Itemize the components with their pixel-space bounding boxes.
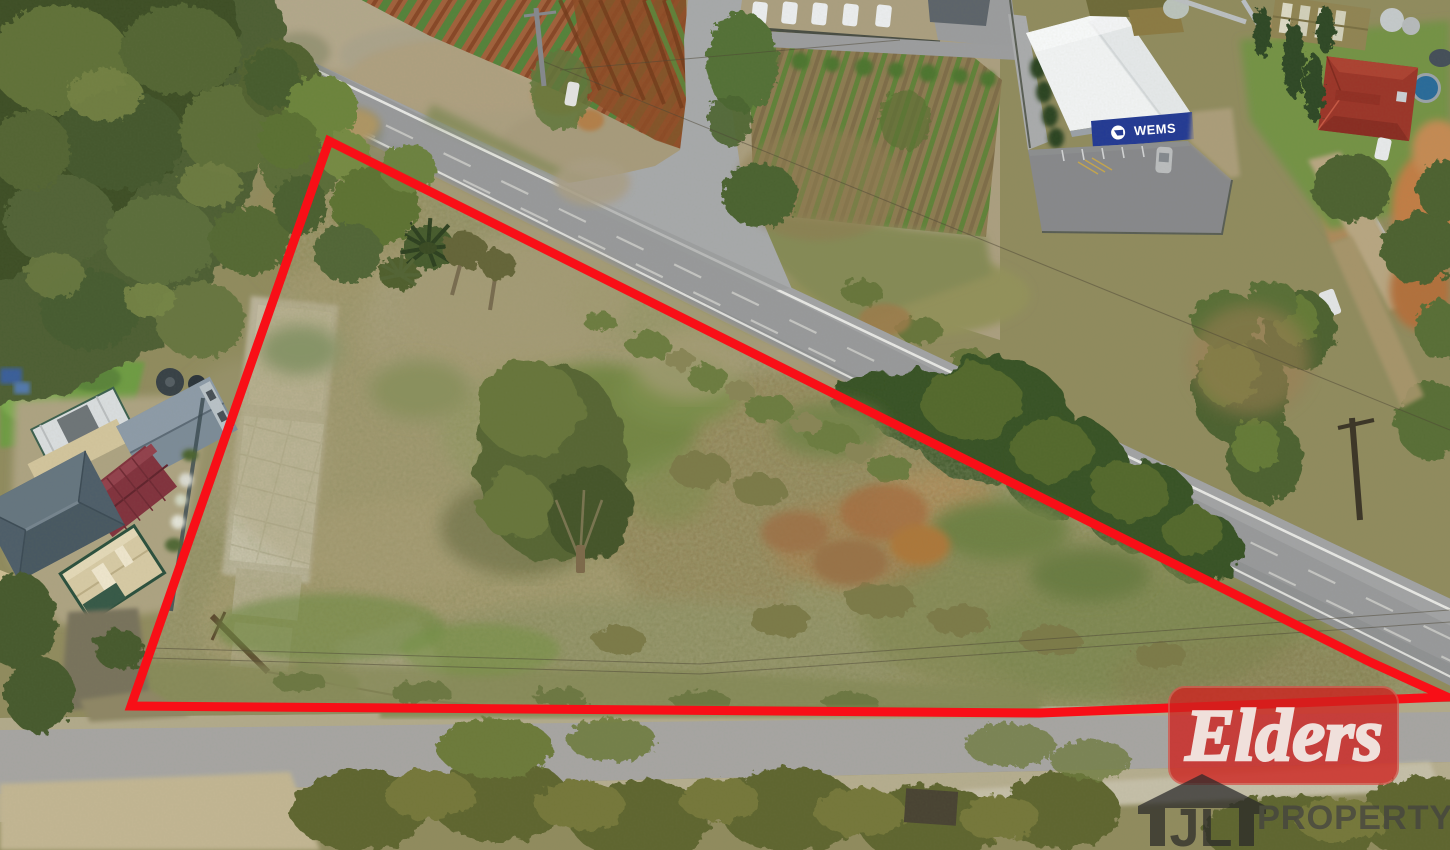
svg-text:Elders: Elders	[1184, 695, 1382, 777]
svg-text:JL: JL	[1169, 798, 1232, 850]
svg-text:PROPERTY: PROPERTY	[1257, 799, 1450, 837]
